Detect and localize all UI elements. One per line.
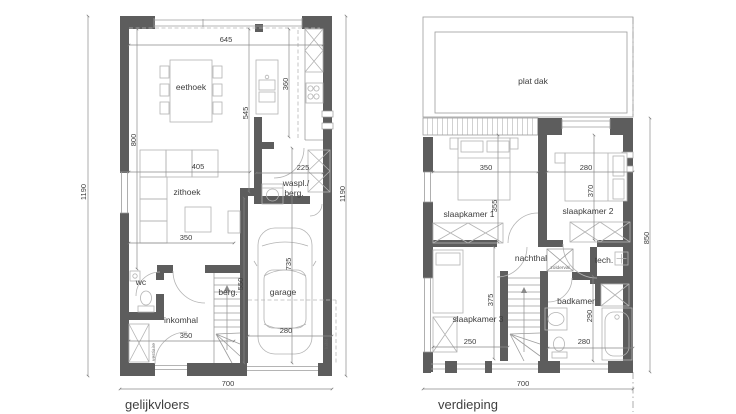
washbasin-icon (545, 308, 567, 330)
dim-850: 850 (642, 232, 651, 245)
label-tech: tech. (595, 255, 613, 265)
label-luifel: luifel (324, 339, 330, 349)
label-zolderval: zolderval (550, 265, 569, 271)
vestiaire-closet (129, 324, 149, 362)
dim-645: 645 (220, 35, 233, 44)
dim-280-bad: 280 (578, 337, 591, 346)
dim-405: 405 (192, 162, 205, 171)
dim-700-upper: 700 (517, 379, 530, 388)
tall-cabinet (305, 29, 323, 72)
label-wc: wc (135, 277, 147, 287)
roof-edge-hatch (423, 118, 538, 135)
ground-floor-plan: 645 800 360 545 405 225 350 280 735 550 … (79, 16, 347, 412)
dim-280-sk2: 280 (580, 163, 593, 172)
dim-290: 290 (585, 310, 594, 323)
upper-floor-plan: 350 355 280 370 375 250 290 280 850 700 … (423, 17, 651, 412)
dim-225: 225 (297, 163, 310, 172)
dim-800: 800 (129, 134, 138, 147)
floorplan-canvas: 645 800 360 545 405 225 350 280 735 550 … (0, 0, 736, 414)
stove-icon (306, 83, 323, 103)
upper-floor-title: verdieping (438, 397, 498, 412)
floorplan-drawing: 645 800 360 545 405 225 350 280 735 550 … (0, 0, 736, 414)
dim-1190-right: 1190 (338, 186, 347, 202)
coffee-table (185, 207, 211, 232)
label-eethoek: eethoek (176, 82, 207, 92)
label-badkamer: badkamer (557, 296, 595, 306)
label-waspl-2: berg. (284, 188, 303, 198)
garage-door-arc (310, 204, 322, 216)
living-door-arc (173, 271, 205, 303)
kitchen-island-sink (256, 60, 278, 114)
dim-545: 545 (241, 107, 250, 120)
label-berg: berg. (218, 287, 237, 297)
label-slaapkamer3: slaapkamer 3 (452, 314, 503, 324)
label-waspl-1: waspl./ (282, 178, 310, 188)
dim-350-inkomhal: 350 (180, 331, 193, 340)
dim-700-ground: 700 (222, 379, 235, 388)
label-nachthal: nachthal (515, 253, 547, 263)
dim-280-garage: 280 (280, 326, 293, 335)
dim-250: 250 (464, 337, 477, 346)
label-inkomhal: inkomhal (164, 315, 198, 325)
label-zithoek: zithoek (174, 187, 202, 197)
sk1-door-arc (508, 213, 538, 243)
vent-slit (322, 123, 333, 129)
toilet-upper-icon (552, 337, 567, 358)
dim-1190-left: 1190 (79, 184, 88, 200)
dim-735: 735 (284, 258, 293, 271)
closet-sk2 (570, 222, 630, 242)
dim-360: 360 (281, 78, 290, 91)
label-slaapkamer1: slaapkamer 1 (443, 209, 494, 219)
side-table (228, 211, 240, 233)
vent-slit (322, 111, 333, 117)
label-slaapkamer2: slaapkamer 2 (562, 206, 613, 216)
dim-370: 370 (586, 185, 595, 198)
label-vestiaire: vestiaire (151, 343, 157, 361)
bed-sk3 (433, 250, 463, 313)
stairs-upper (508, 278, 540, 361)
dim-350-sk1: 350 (480, 163, 493, 172)
label-garage: garage (270, 287, 297, 297)
dim-350-zithoek: 350 (180, 233, 193, 242)
ground-labels: eethoek zithoek waspl./ berg. wc inkomha… (125, 82, 330, 412)
dim-375: 375 (486, 294, 495, 307)
label-plat-dak: plat dak (518, 76, 549, 86)
ground-floor-title: gelijkvloers (125, 397, 190, 412)
